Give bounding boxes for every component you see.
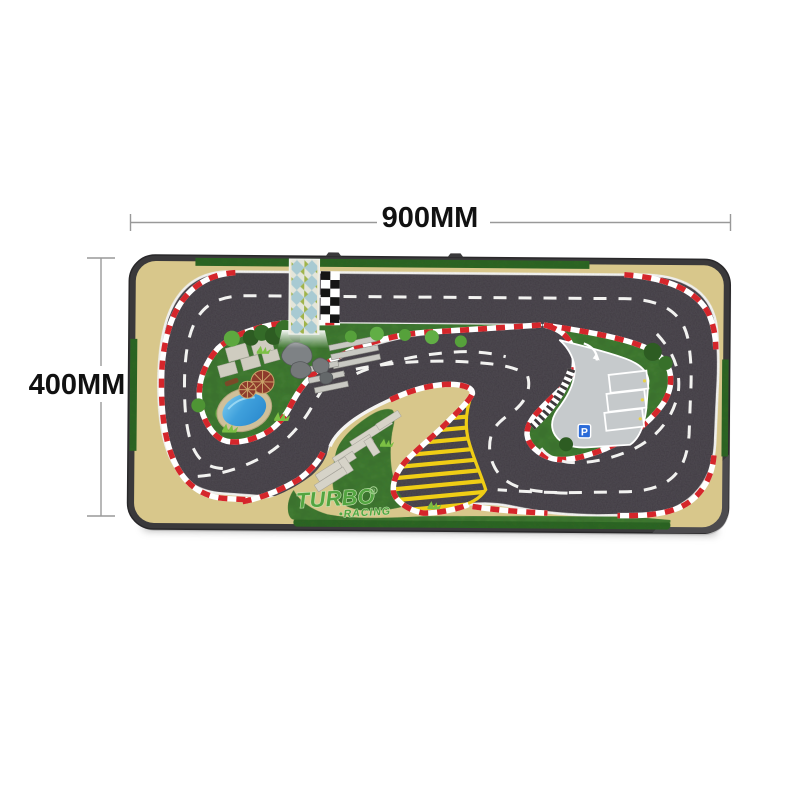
svg-text:400MM: 400MM xyxy=(29,369,126,401)
svg-text:900MM: 900MM xyxy=(382,202,479,234)
svg-text:P: P xyxy=(581,426,588,438)
